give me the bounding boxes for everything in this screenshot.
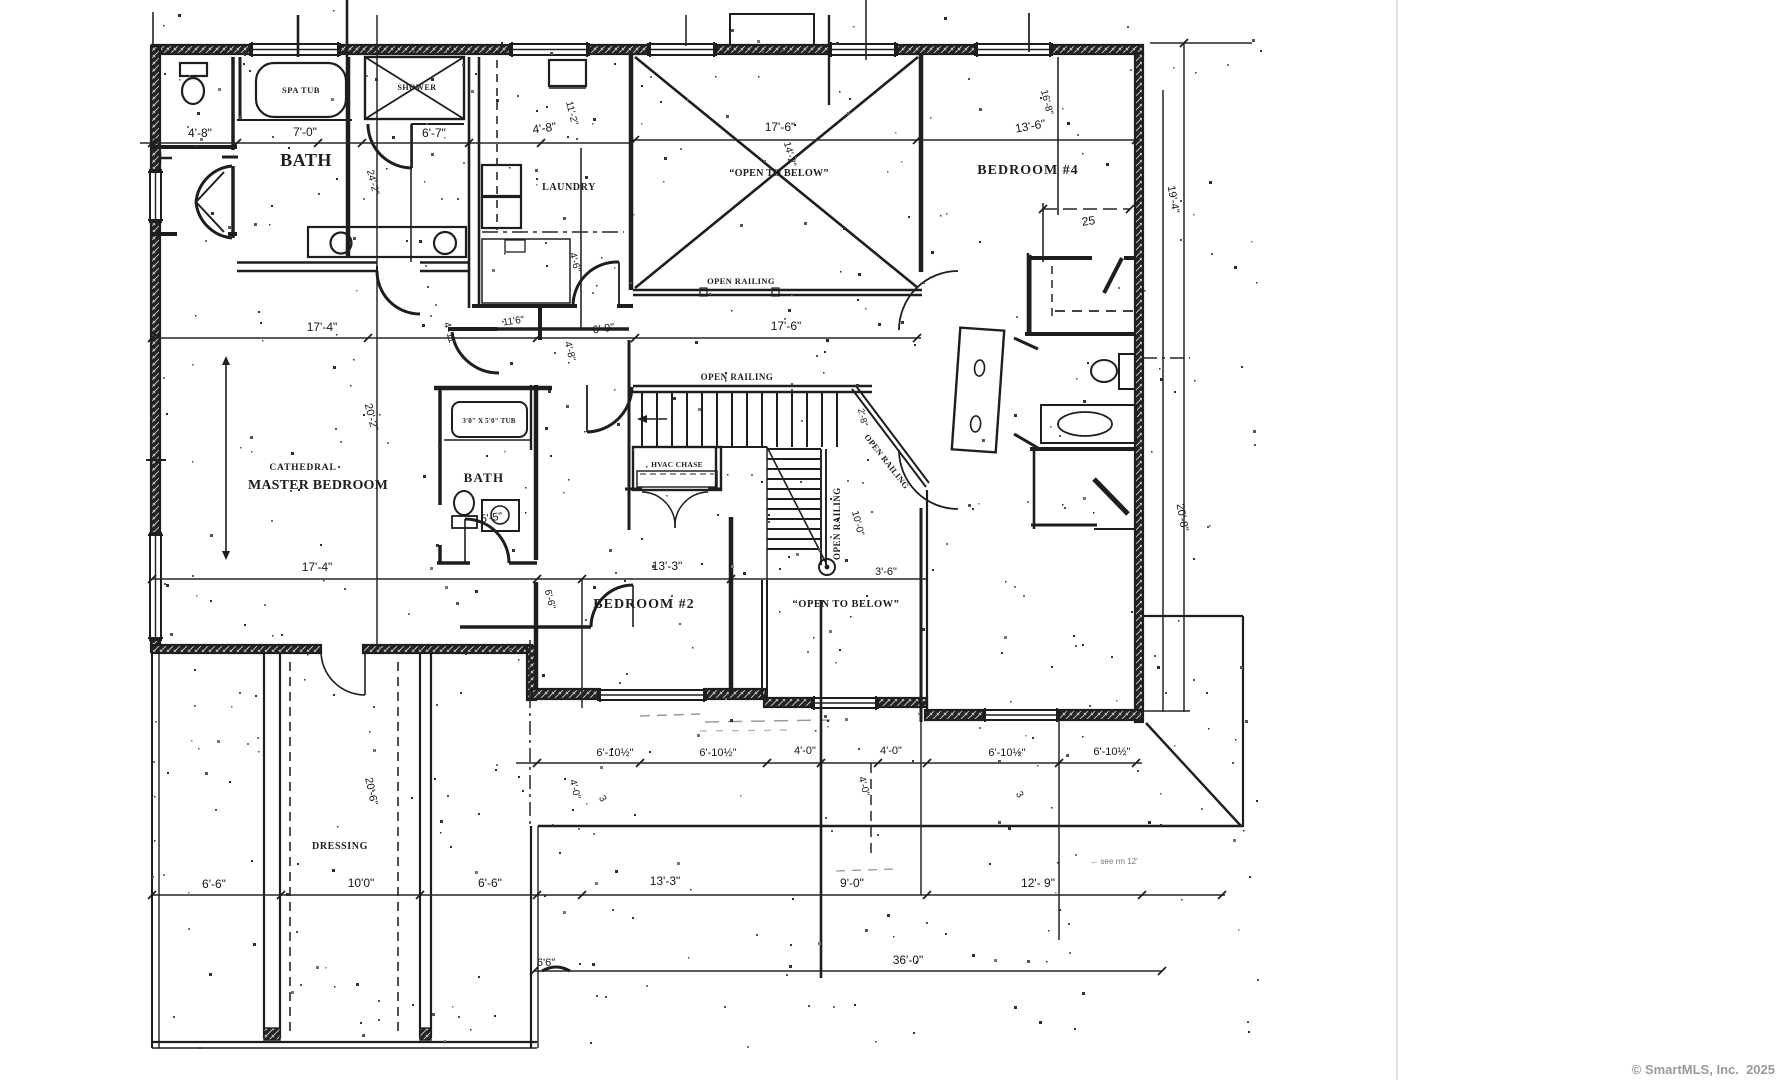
svg-text:36'-0": 36'-0" (893, 953, 924, 967)
svg-text:25: 25 (1081, 213, 1096, 229)
svg-text:10'0": 10'0" (348, 876, 375, 890)
svg-text:3'0" X 5'0" TUB: 3'0" X 5'0" TUB (462, 417, 515, 425)
svg-text:17'-4": 17'-4" (302, 560, 333, 574)
svg-text:6'-6": 6'-6" (478, 876, 502, 890)
svg-text:SHOWER: SHOWER (397, 83, 436, 92)
svg-text:9'-0": 9'-0" (840, 876, 864, 890)
svg-text:6'-10½": 6'-10½" (988, 747, 1025, 759)
svg-text:“OPEN TO BELOW”: “OPEN TO BELOW” (793, 599, 900, 610)
svg-text:4'-0": 4'-0" (880, 745, 902, 757)
svg-text:12'- 9": 12'- 9" (1021, 876, 1055, 890)
svg-text:← see rm 12': ← see rm 12' (1090, 857, 1138, 866)
svg-text:CATHEDRAL: CATHEDRAL (269, 463, 336, 473)
svg-text:BEDROOM #4: BEDROOM #4 (977, 163, 1078, 178)
svg-text:6'-10½": 6'-10½" (1093, 746, 1130, 758)
svg-text:SPA TUB: SPA TUB (282, 85, 320, 95)
svg-text:OPEN RAILING: OPEN RAILING (832, 487, 842, 560)
svg-text:4'-8": 4'-8" (188, 126, 212, 140)
svg-text:6'-7": 6'-7" (422, 126, 446, 140)
svg-text:LAUNDRY: LAUNDRY (542, 182, 596, 193)
svg-text:6'-10½": 6'-10½" (596, 747, 633, 759)
svg-text:HVAC CHASE: HVAC CHASE (651, 460, 703, 469)
svg-text:13'-3": 13'-3" (652, 559, 683, 573)
svg-text:6'-6": 6'-6" (202, 877, 226, 891)
svg-text:BATH: BATH (464, 470, 505, 485)
svg-text:17'-6": 17'-6" (771, 319, 802, 333)
svg-text:DRESSING: DRESSING (312, 841, 368, 852)
svg-text:6'-10½": 6'-10½" (699, 747, 736, 759)
svg-text:OPEN RAILING: OPEN RAILING (707, 276, 775, 286)
svg-text:17'-6": 17'-6" (765, 120, 796, 134)
svg-text:17'-4": 17'-4" (307, 320, 338, 334)
svg-text:MASTER BEDROOM: MASTER BEDROOM (248, 478, 388, 493)
svg-text:OPEN RAILING: OPEN RAILING (701, 372, 774, 382)
svg-text:7'-0": 7'-0" (293, 125, 317, 139)
svg-text:3'-6": 3'-6" (875, 566, 897, 578)
svg-text:© SmartMLS, Inc. 2025: © SmartMLS, Inc. 2025 (1632, 1062, 1775, 1077)
svg-text:BATH: BATH (280, 150, 332, 170)
svg-text:BEDROOM #2: BEDROOM #2 (593, 597, 694, 612)
svg-text:“OPEN TO BELOW”: “OPEN TO BELOW” (729, 168, 828, 179)
svg-text:13'-3": 13'-3" (650, 874, 681, 888)
svg-text:4'-0": 4'-0" (794, 745, 816, 757)
